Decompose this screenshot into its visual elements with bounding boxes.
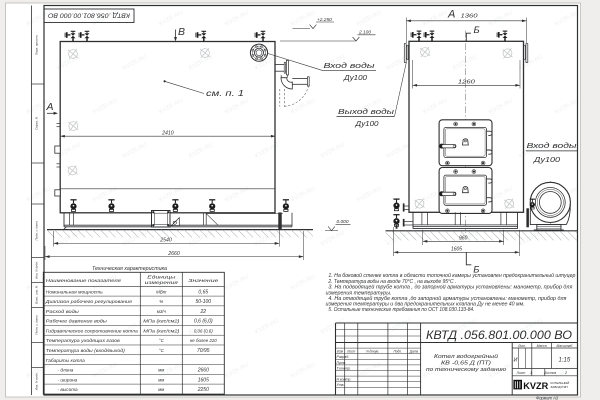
- svg-text:2250: 2250: [197, 387, 209, 393]
- svg-text:- ширина: - ширина: [58, 377, 78, 382]
- svg-text:2660: 2660: [167, 251, 180, 257]
- svg-text:В: В: [178, 26, 185, 38]
- svg-text:1360: 1360: [461, 13, 478, 19]
- svg-text:Значение: Значение: [188, 278, 219, 283]
- svg-text:- длина: - длина: [58, 368, 74, 373]
- svg-text:Подп. и дата: Подп. и дата: [35, 315, 39, 335]
- svg-text:Дата: Дата: [409, 350, 419, 354]
- svg-text:Инв. N дубл.: Инв. N дубл.: [35, 261, 39, 279]
- svg-text:Взам. инв. N: Взам. инв. N: [35, 285, 39, 304]
- svg-text:1: 1: [530, 371, 532, 375]
- svg-text:Лист: Лист: [346, 350, 356, 354]
- svg-text:KVZR: KVZR: [523, 381, 548, 392]
- svg-text:Изм: Изм: [337, 350, 344, 354]
- svg-text:Вход воды: Вход воды: [527, 141, 578, 150]
- svg-text:Котел водогрейный: Котел водогрейный: [434, 353, 498, 360]
- svg-text:Лит.: Лит.: [517, 344, 526, 348]
- svg-text:мм: мм: [158, 368, 164, 373]
- svg-text:Ду100: Ду100: [533, 155, 561, 164]
- svg-text:Габариты котла: Габариты котла: [46, 358, 85, 363]
- svg-text:Ду100: Ду100: [343, 73, 368, 82]
- svg-text:+2.250: +2.250: [317, 17, 332, 23]
- svg-text:2.100: 2.100: [358, 30, 371, 36]
- svg-text:мм: мм: [158, 377, 164, 382]
- svg-text:ЗАВОД РЭП: ЗАВОД РЭП: [551, 385, 568, 389]
- svg-text:N докум.: N докум.: [366, 350, 379, 354]
- svg-text:Инв. N подл.: Инв. N подл.: [35, 372, 39, 390]
- svg-text:Выход воды: Выход воды: [338, 107, 395, 116]
- svg-text:Гидравлическое сопротивление к: Гидравлическое сопротивление котла: [46, 328, 138, 333]
- svg-text:Формат А3: Формат А3: [536, 396, 559, 400]
- svg-text:см. п. 1: см. п. 1: [206, 89, 244, 98]
- svg-text:МПа (кгс/см2): МПа (кгс/см2): [143, 328, 180, 333]
- svg-text:0,6 (6,0): 0,6 (6,0): [194, 319, 213, 325]
- svg-text:МВт: МВт: [156, 289, 167, 294]
- svg-text:Б: Б: [474, 25, 480, 36]
- svg-text:Температура воды (вход/выход): Температура воды (вход/выход): [46, 348, 125, 353]
- svg-text:Лист: Лист: [516, 371, 526, 375]
- svg-text:1260: 1260: [458, 79, 475, 85]
- svg-text:°С: °С: [159, 338, 165, 343]
- svg-text:не более 220: не более 220: [190, 338, 217, 343]
- svg-text:А: А: [447, 9, 455, 21]
- svg-text:5. Остальные технические треб: 5. Остальные технические требования по О…: [328, 307, 474, 313]
- svg-text:Диапазон рабочего регулировани: Диапазон рабочего регулирования: [45, 299, 133, 304]
- svg-text:Расход воды: Расход воды: [46, 309, 80, 314]
- svg-text:Температура уходящих газов: Температура уходящих газов: [46, 338, 121, 343]
- svg-text:Перв. примен.: Перв. примен.: [35, 34, 39, 55]
- svg-text:°С: °С: [159, 348, 165, 353]
- svg-text:МПа (кгс/см2): МПа (кгс/см2): [143, 319, 180, 324]
- svg-text:- высота: - высота: [58, 387, 79, 392]
- svg-text:22: 22: [200, 309, 207, 315]
- svg-text:960: 960: [459, 236, 468, 242]
- svg-text:1605: 1605: [451, 247, 462, 253]
- svg-text:%: %: [159, 299, 163, 304]
- svg-text:Масштаб: Масштаб: [556, 344, 572, 348]
- svg-text:1:15: 1:15: [559, 358, 571, 364]
- svg-text:измерения: измерения: [145, 280, 179, 285]
- svg-text:0,06 (0,6): 0,06 (0,6): [194, 328, 213, 333]
- svg-text:Листов: Листов: [543, 371, 557, 375]
- svg-text:2540: 2540: [159, 238, 172, 244]
- svg-text:Подп.: Подп.: [393, 350, 402, 354]
- svg-text:Техническая характеристика: Техническая характеристика: [92, 266, 167, 272]
- svg-text:Справ. N: Справ. N: [35, 116, 39, 130]
- svg-text:Номинальная мощность: Номинальная мощность: [46, 289, 104, 294]
- svg-text:Т.контр.: Т.контр.: [337, 366, 351, 370]
- svg-text:м3/ч: м3/ч: [157, 309, 167, 314]
- svg-text:Масса: Масса: [537, 344, 547, 348]
- svg-text:Подп. и дата: Подп. и дата: [35, 221, 39, 241]
- svg-text:Пров.: Пров.: [337, 361, 346, 365]
- svg-text:1605: 1605: [198, 377, 209, 383]
- svg-text:50-100: 50-100: [196, 299, 212, 305]
- svg-text:Утв.: Утв.: [337, 383, 345, 387]
- svg-text:2410: 2410: [161, 130, 174, 136]
- svg-text:70/95: 70/95: [197, 348, 210, 354]
- svg-text:Рабочее давление воды: Рабочее давление воды: [46, 319, 108, 324]
- svg-text:И: И: [514, 358, 518, 364]
- svg-text:Наименование показателя: Наименование показателя: [46, 278, 122, 283]
- svg-text:0,65: 0,65: [198, 289, 208, 295]
- svg-text:Ду100: Ду100: [354, 119, 379, 128]
- svg-text:КВТД .056.801.00.000 ВО: КВТД .056.801.00.000 ВО: [426, 328, 572, 342]
- svg-text:КВ -0,65 Д (ПТ): КВ -0,65 Д (ПТ): [441, 361, 491, 367]
- svg-text:2660: 2660: [197, 368, 209, 374]
- svg-text:Разраб.: Разраб.: [337, 355, 350, 359]
- svg-text:Единицы: Единицы: [147, 275, 176, 280]
- svg-text:Вход воды: Вход воды: [324, 61, 376, 70]
- svg-text:мм: мм: [158, 387, 164, 392]
- svg-text:Н.контр.: Н.контр.: [337, 378, 352, 382]
- svg-text:КВТД .056.801.00.000 ВО: КВТД .056.801.00.000 ВО: [48, 11, 130, 18]
- svg-text:А: А: [46, 101, 54, 113]
- svg-text:по техническому заданию: по техническому заданию: [426, 367, 507, 373]
